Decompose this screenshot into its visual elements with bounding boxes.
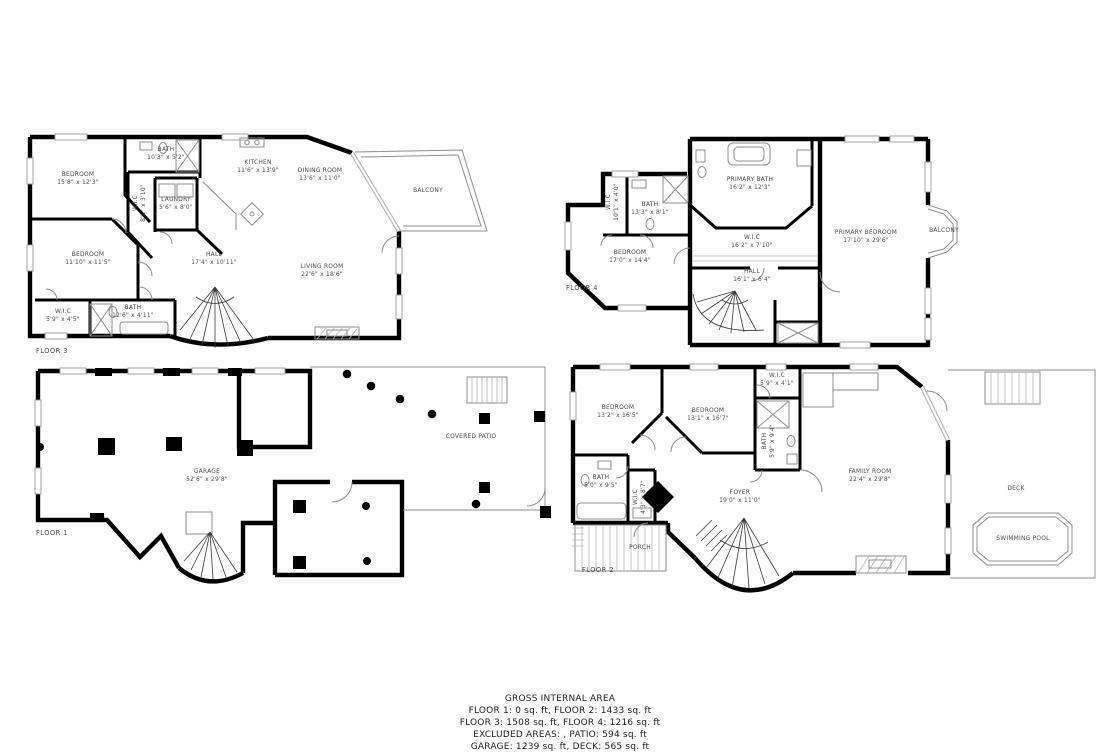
- room-label-f2-bath-right: BATH5'9" x 9'4": [762, 424, 778, 458]
- floor2-fireplace: [856, 556, 906, 573]
- room-label-f4-primary-bedroom: PRIMARY BEDROOM17'10" x 29'6": [835, 230, 897, 246]
- floor3-walls: [30, 137, 399, 345]
- summary-line-2: FLOOR 3: 1508 sq. ft, FLOOR 4: 1216 sq. …: [0, 718, 1120, 730]
- room-label-f4-balcony: BALCONY: [929, 228, 959, 236]
- summary-line-1: FLOOR 1: 0 sq. ft, FLOOR 2: 1433 sq. ft: [0, 706, 1120, 718]
- room-label-f2-bath-left: BATH5'0" x 9'5": [584, 475, 618, 491]
- room-label-f2-swimming-pool: SWIMMING POOL: [996, 536, 1049, 544]
- room-label-f4-bath: BATH13'3" x 8'1": [631, 202, 669, 218]
- room-label-f3-kitchen: KITCHEN11'6" x 13'9": [237, 160, 279, 176]
- room-label-f3-bedroom-1: BEDROOM15'8" x 12'3": [57, 172, 99, 188]
- room-label-f2-deck: DECK: [1007, 486, 1024, 494]
- room-label-f1-garage: GARAGE52'6" x 29'8": [186, 469, 228, 485]
- floor4-closet-x: [663, 176, 818, 343]
- room-label-f4-hall: HALL16'1" x 6'4": [733, 269, 771, 285]
- room-label-f3-bath-bottom: BATH12'6" x 4'11": [112, 305, 154, 321]
- floor3-kitchen-fixtures: [203, 138, 264, 230]
- floor1-windows: [35, 368, 285, 494]
- summary-line-4: GARAGE: 1239 sq. ft, DECK: 565 sq. ft: [0, 742, 1120, 754]
- floor3-laundry-fixtures: [159, 184, 193, 197]
- gross-internal-area-summary: GROSS INTERNAL AREA FLOOR 1: 0 sq. ft, F…: [0, 694, 1120, 754]
- floor1-patio-outline: [310, 367, 545, 510]
- floor2-walls: [573, 367, 948, 590]
- room-label-f3-balcony: BALCONY: [413, 188, 443, 196]
- floor3-tag: FLOOR 3: [36, 347, 68, 355]
- room-label-f2-family-room: FAMILY ROOM22'4" x 29'8": [849, 469, 892, 485]
- room-label-f2-porch: PORCH: [629, 545, 651, 553]
- room-label-f2-wic-mid: W.I.C4'3" x 8'7": [633, 480, 649, 514]
- floor1-patio-columns: [343, 370, 551, 518]
- room-label-f3-bedroom-2: BEDROOM11'10" x 11'5": [65, 252, 111, 268]
- floor1-stairs: [184, 512, 237, 579]
- room-label-f4-wic: W.I.C16'2" x 7'10": [731, 235, 773, 251]
- floor1-plan: [35, 367, 551, 581]
- floor2-family-room-fixtures: [803, 373, 878, 407]
- summary-line-3: EXCLUDED AREAS: , PATIO: 594 sq. ft: [0, 730, 1120, 742]
- room-label-f3-laundry: LAUNDRY5'6" x 8'0": [159, 197, 193, 213]
- room-label-f3-dining-room: DINING ROOM13'6" x 11'0": [298, 168, 342, 184]
- floor4-tag: FLOOR 4: [566, 284, 598, 292]
- room-label-f1-covered-patio: COVERED PATIO: [446, 434, 497, 442]
- room-label-f2-foyer: FOYER19'0" x 11'0": [719, 490, 761, 506]
- floorplan-sheet: BEDROOM15'8" x 12'3" BATH10'3" x 5'2" KI…: [0, 0, 1120, 754]
- room-label-f4-bedroom: BEDROOM17'0" x 14'4": [609, 250, 651, 266]
- room-label-f3-wic-bottom: W.I.C5'9" x 4'5": [46, 309, 80, 325]
- floor2-porch: [572, 525, 666, 571]
- room-label-f2-wic-top: W.I.C5'9" x 4'1": [760, 373, 794, 389]
- room-label-f4-wic-left: W.I.C10'1" x 4'0": [606, 183, 622, 221]
- floor3-stairs: [180, 287, 254, 348]
- room-label-f3-bath-top: BATH10'3" x 5'2": [147, 147, 185, 163]
- room-label-f2-bedroom-2: BEDROOM13'1" x 16'7": [687, 408, 729, 424]
- room-label-f2-bedroom-1: BEDROOM13'2" x 16'5": [597, 405, 639, 421]
- floor1-grill: [467, 377, 507, 403]
- floor1-door-arcs: [332, 482, 545, 506]
- floorplan-drawing: [0, 0, 1120, 754]
- room-label-f3-hall: HALL17'4" x 10'11": [191, 252, 237, 268]
- summary-title: GROSS INTERNAL AREA: [0, 694, 1120, 706]
- floor4-stairs: [693, 291, 764, 333]
- floor1-tag: FLOOR 1: [36, 529, 68, 537]
- floor2-plan: [570, 364, 1095, 590]
- room-label-f3-wic-mid: W.I.C8'1" x 3'10": [133, 184, 149, 222]
- floor2-deck-outline: [948, 370, 1095, 578]
- room-label-f4-primary-bath: PRIMARY BATH16'2" x 12'3": [727, 177, 773, 193]
- floor2-stairs: [696, 518, 779, 589]
- floor4-wic-floor-lines: [693, 256, 817, 261]
- floor3-windows: [27, 134, 402, 339]
- floor1-garage-columns: [36, 368, 253, 522]
- floor1-room-columns: [293, 500, 371, 569]
- room-label-f3-living-room: LIVING ROOM22'6" x 18'6": [301, 264, 344, 280]
- floor2-tag: FLOOR 2: [582, 566, 614, 574]
- floor2-diagonal-window: [922, 387, 948, 440]
